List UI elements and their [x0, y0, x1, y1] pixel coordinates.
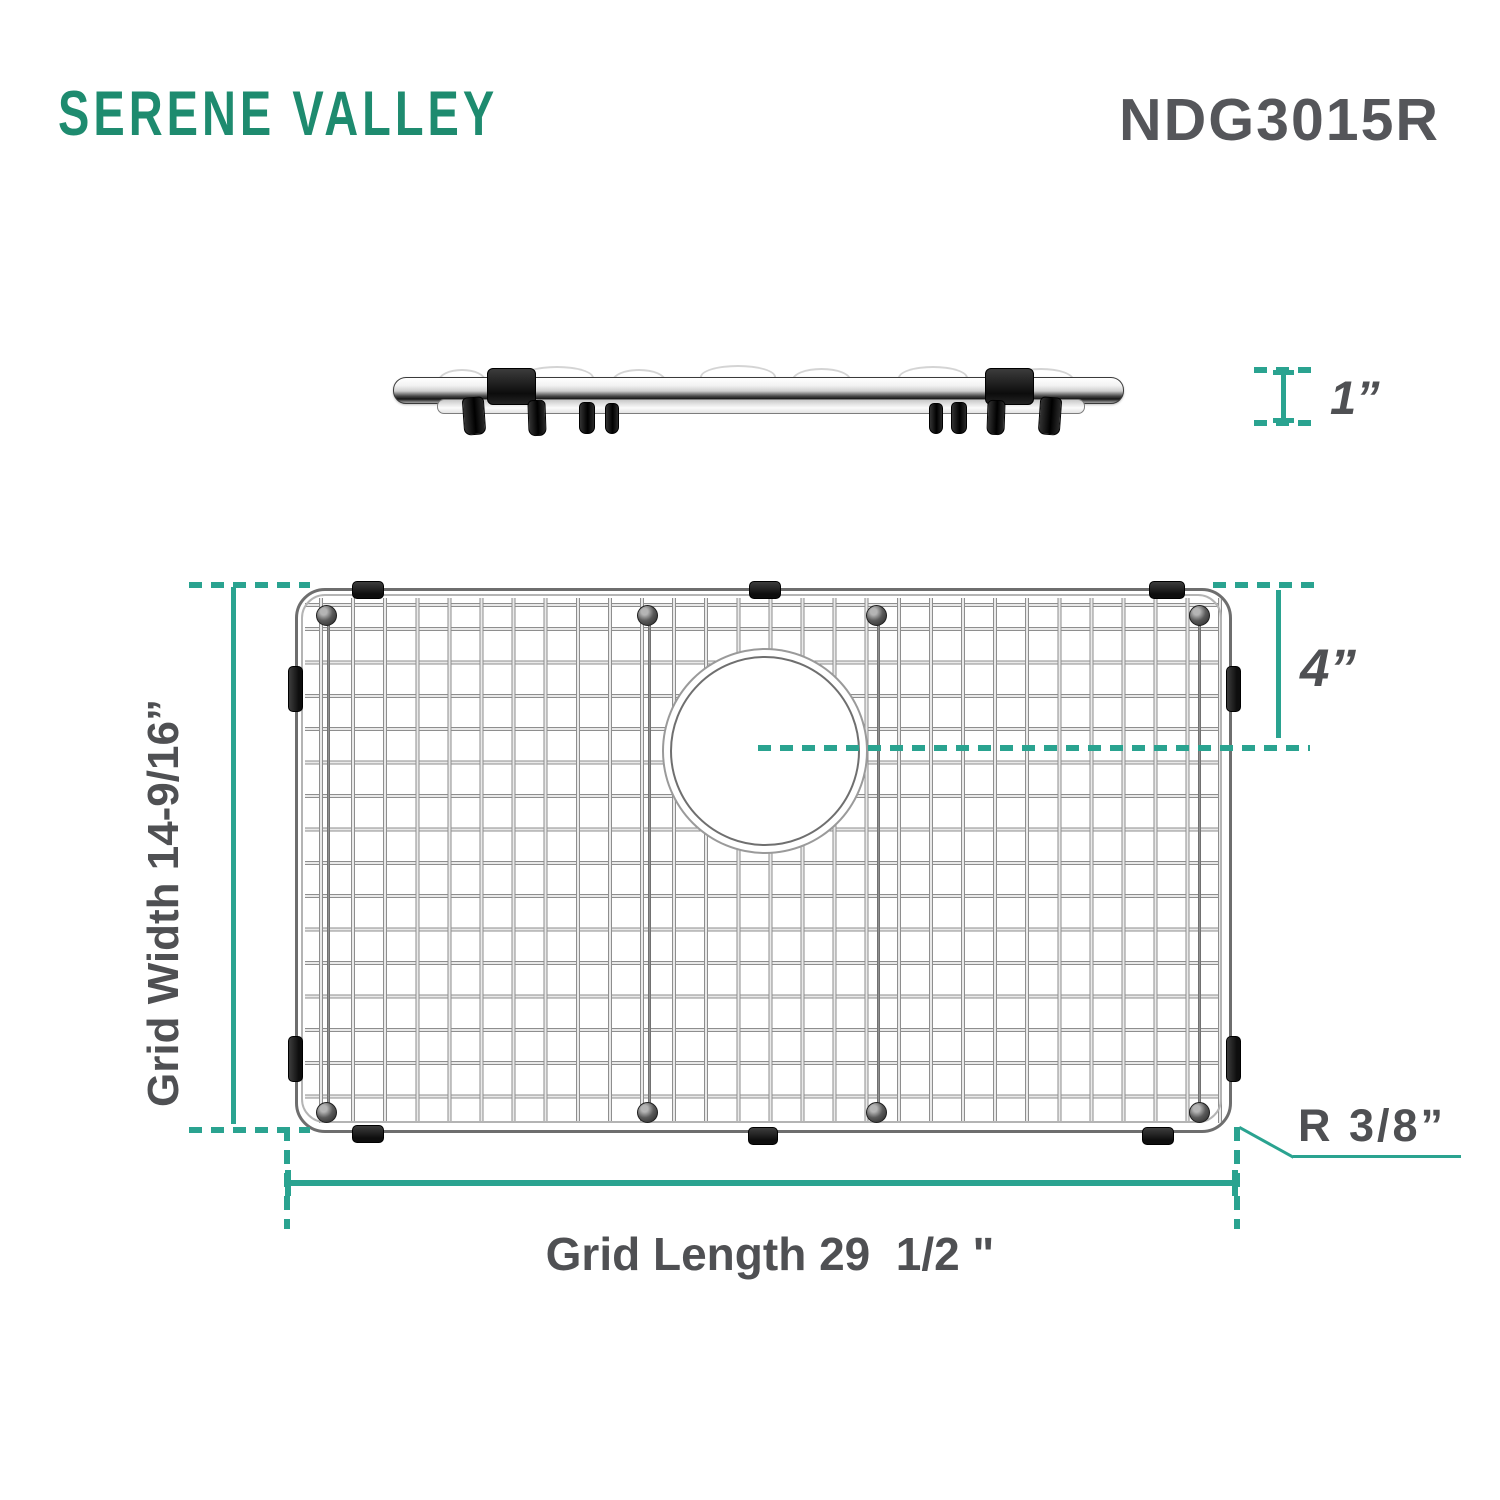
- foot-top-view: [316, 605, 337, 626]
- dimension-cap: [1273, 370, 1294, 375]
- foot-top-view: [866, 605, 887, 626]
- dimension-line: [1281, 372, 1286, 421]
- rubber-foot: [1038, 396, 1063, 435]
- rubber-bumper: [352, 1125, 384, 1143]
- grid-length-label: Grid Length 29 1/2 ": [420, 1227, 1120, 1281]
- brand-logo: SERENE VALLEY: [58, 76, 498, 150]
- foot-top-view: [1189, 1102, 1210, 1123]
- rubber-clip: [487, 368, 536, 405]
- foot-top-view: [1189, 605, 1210, 626]
- rubber-foot: [462, 396, 487, 435]
- dimension-line: [231, 587, 236, 1124]
- wire-reflection: [700, 365, 776, 377]
- dimension-cap: [1232, 1170, 1238, 1196]
- foot-top-view: [316, 1102, 337, 1123]
- rubber-foot: [527, 400, 546, 437]
- dimension-line: [288, 1180, 1235, 1186]
- rubber-bumper: [1142, 1127, 1174, 1145]
- side-height-label: 1”: [1330, 370, 1380, 425]
- leader-line: [1293, 1155, 1461, 1158]
- rubber-foot: [986, 400, 1005, 436]
- rubber-bumper: [352, 581, 384, 599]
- grid-top-view: [295, 588, 1232, 1133]
- foot-top-view: [637, 1102, 658, 1123]
- rubber-bumper: [288, 1036, 303, 1082]
- rubber-foot: [605, 403, 619, 434]
- rubber-bumper: [748, 1127, 778, 1145]
- rubber-foot: [951, 402, 967, 434]
- rubber-foot: [929, 403, 943, 434]
- dimension-cap: [285, 1170, 291, 1196]
- rubber-bumper: [1226, 666, 1241, 712]
- product-dimension-diagram: SERENE VALLEY NDG3015R 1”: [0, 0, 1500, 1500]
- dimension-line: [1276, 590, 1281, 738]
- rubber-bumper: [1226, 1036, 1241, 1082]
- rubber-foot: [579, 402, 595, 434]
- foot-top-view: [866, 1102, 887, 1123]
- extension-line: [189, 1127, 310, 1133]
- dimension-cap: [1273, 418, 1294, 423]
- extension-line: [189, 582, 310, 588]
- rubber-bumper: [749, 581, 781, 599]
- hole-centerline: [758, 745, 1310, 751]
- foot-top-view: [637, 605, 658, 626]
- model-number: NDG3015R: [1040, 86, 1440, 154]
- extension-line: [1213, 582, 1323, 588]
- rubber-bumper: [288, 666, 303, 712]
- grid-width-label: Grid Width 14-9/16”: [134, 623, 194, 1183]
- hole-offset-label: 4”: [1300, 638, 1356, 699]
- corner-radius-label: R 3/8”: [1298, 1100, 1446, 1152]
- grid-inner-rim: [301, 594, 1222, 1123]
- leader-line: [1239, 1126, 1295, 1159]
- rubber-bumper: [1149, 581, 1185, 599]
